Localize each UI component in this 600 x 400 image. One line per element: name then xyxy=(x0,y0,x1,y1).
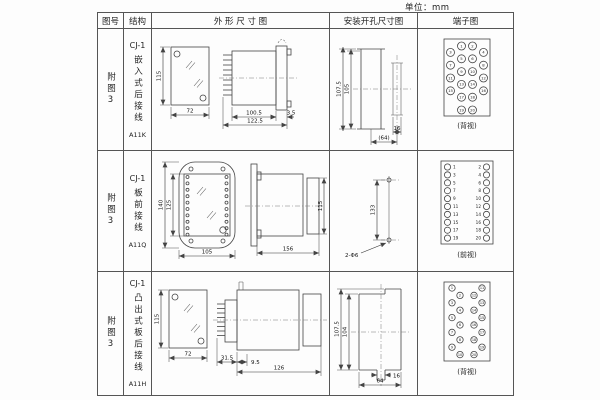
dim-depth-row2: 156 xyxy=(282,247,293,253)
cell-row3-fig: 附图3 xyxy=(98,272,124,396)
svg-text:6: 6 xyxy=(458,323,460,327)
svg-text:5: 5 xyxy=(450,315,452,319)
fig-no-row3: 附图3 xyxy=(105,316,117,352)
outline-drawing-row1: 115 72 100.5 3.5 xyxy=(153,31,329,149)
svg-text:18: 18 xyxy=(475,228,481,233)
dim-v-row2: 133 xyxy=(370,204,376,215)
svg-text:8: 8 xyxy=(458,337,460,341)
structure-desc-row1: 嵌入式后接线 xyxy=(132,55,144,124)
svg-text:7: 7 xyxy=(449,62,452,67)
dim-w-overall-row1: (64) xyxy=(378,135,389,141)
dim-v-outer-row3: 107.5 xyxy=(334,320,340,336)
model-row1: CJ-1 xyxy=(130,41,146,50)
svg-text:12: 12 xyxy=(475,204,481,209)
cell-row2-structure: CJ-1 板前接线 A11Q xyxy=(124,151,152,272)
hatch-mark xyxy=(186,61,203,88)
mounting-drawing-row1: 107.5 105 16 (64) xyxy=(331,31,417,149)
cell-row1-mounting: 107.5 105 16 (64) xyxy=(330,29,418,151)
svg-text:2: 2 xyxy=(471,43,474,48)
header-outline: 外 形 尺 寸 图 xyxy=(152,13,330,29)
code-row3: A11H xyxy=(129,380,147,388)
dim-w-slot-row3: 16 xyxy=(393,373,400,379)
cell-row1-outline: 115 72 100.5 3.5 xyxy=(152,29,330,151)
svg-text:18: 18 xyxy=(471,337,475,341)
svg-text:16: 16 xyxy=(471,323,475,327)
svg-text:14: 14 xyxy=(475,212,481,217)
svg-text:20: 20 xyxy=(475,236,481,241)
header-mounting: 安装开孔尺寸图 xyxy=(330,13,418,29)
svg-text:3: 3 xyxy=(450,300,452,304)
terminal-pins xyxy=(223,55,232,95)
cell-row2-terminal: 1234567891011121314151617181920 (前视) xyxy=(418,151,514,272)
svg-text:1: 1 xyxy=(460,43,463,48)
svg-text:15: 15 xyxy=(448,88,453,93)
fig-no-row2: 附图3 xyxy=(105,193,117,229)
datasheet-page: 单位：mm 图号 结构 外 形 尺 寸 图 安装开孔尺寸图 端子图 附图3 CJ… xyxy=(0,0,600,400)
svg-text:1: 1 xyxy=(453,164,456,169)
svg-text:3: 3 xyxy=(449,49,452,54)
svg-text:3: 3 xyxy=(453,172,456,177)
header-structure: 结构 xyxy=(124,13,152,29)
cell-row3-structure: CJ-1 凸出式板后接线 A11H xyxy=(124,272,152,396)
svg-text:16: 16 xyxy=(481,88,486,93)
svg-text:9: 9 xyxy=(450,345,452,349)
terminal-circles-front: 1234567891011121314151617181920 xyxy=(444,164,489,241)
svg-text:15: 15 xyxy=(453,220,459,225)
outline-drawing-row2: 140 125 105 156 115 xyxy=(153,152,329,270)
cell-row2-outline: 140 125 105 156 115 xyxy=(152,151,330,272)
structure-desc-row2: 板前接线 xyxy=(132,188,144,234)
drawing-table: 图号 结构 外 形 尺 寸 图 安装开孔尺寸图 端子图 附图3 CJ-1 嵌入式… xyxy=(97,12,514,396)
terminal-circles-rear: 1234567891011121314151617181920 xyxy=(446,42,487,114)
svg-text:19: 19 xyxy=(459,107,464,112)
svg-text:13: 13 xyxy=(453,212,459,217)
dim-front-width-row1: 72 xyxy=(186,108,193,114)
svg-text:7: 7 xyxy=(453,188,456,193)
code-row1: A11K xyxy=(129,131,146,139)
cell-row2-fig: 附图3 xyxy=(98,151,124,272)
model-row2: CJ-1 xyxy=(130,174,146,183)
svg-text:17: 17 xyxy=(479,330,483,334)
svg-text:16: 16 xyxy=(475,220,481,225)
svg-text:19: 19 xyxy=(479,345,483,349)
svg-text:8: 8 xyxy=(478,188,481,193)
cell-row3-terminal: 1234567891011121314151617181920 (背视) xyxy=(418,272,514,396)
dim-gap-row3: 9.5 xyxy=(251,360,260,366)
mounting-clip xyxy=(278,39,286,43)
svg-text:4: 4 xyxy=(478,172,481,177)
hatch-mark xyxy=(184,304,200,333)
terminal-circles-rear: 1234567891011121314151617181920 xyxy=(448,284,484,357)
dim-v-outer-row1: 107.5 xyxy=(336,80,342,96)
dim-base-row3: 31.5 xyxy=(220,355,233,361)
table-row: 附图3 CJ-1 嵌入式后接线 A11K 115 xyxy=(98,29,514,151)
svg-text:18: 18 xyxy=(470,94,475,99)
svg-text:14: 14 xyxy=(470,81,475,86)
svg-text:6: 6 xyxy=(471,56,474,61)
header-row: 图号 结构 外 形 尺 寸 图 安装开孔尺寸图 端子图 xyxy=(98,13,514,29)
svg-text:19: 19 xyxy=(453,236,459,241)
dim-front-h-outer-row2: 140 xyxy=(158,199,164,210)
dim-flange-row1: 3.5 xyxy=(286,110,295,116)
svg-text:12: 12 xyxy=(471,293,475,297)
cell-row1-structure: CJ-1 嵌入式后接线 A11K xyxy=(124,29,152,151)
svg-text:20: 20 xyxy=(470,107,475,112)
cell-row1-terminal: 1234567891011121314151617181920 (背视) xyxy=(418,29,514,151)
terminal-view-label-row3: (背视) xyxy=(457,367,477,376)
header-fig-no: 图号 xyxy=(98,13,124,29)
dim-w-overall-row3: 64 xyxy=(376,378,383,384)
svg-text:4: 4 xyxy=(458,308,460,312)
cell-row2-mounting: 133 2-Φ6 xyxy=(330,151,418,272)
svg-text:10: 10 xyxy=(475,196,481,201)
dim-side-h-row2: 115 xyxy=(317,200,323,211)
terminal-view-label-row2: (前视) xyxy=(457,250,477,259)
svg-text:6: 6 xyxy=(478,180,481,185)
dim-depth-total-row1: 122.5 xyxy=(247,118,263,124)
svg-text:2: 2 xyxy=(478,164,481,169)
cell-row3-mounting: 107.5 104 16 64 xyxy=(330,272,418,396)
svg-text:17: 17 xyxy=(453,228,459,233)
svg-text:15: 15 xyxy=(479,315,483,319)
svg-text:11: 11 xyxy=(448,75,453,80)
mounting-drawing-row2: 133 2-Φ6 xyxy=(331,152,417,270)
svg-text:10: 10 xyxy=(470,68,475,73)
model-row3: CJ-1 xyxy=(130,279,146,288)
svg-text:5: 5 xyxy=(460,56,463,61)
dim-depth-total-row3: 126 xyxy=(273,365,284,371)
terminal-diagram-row1: 1234567891011121314151617181920 (背视) xyxy=(419,30,513,150)
svg-text:10: 10 xyxy=(457,352,461,356)
dim-w-slot-row1: 16 xyxy=(393,126,400,132)
svg-text:5: 5 xyxy=(453,180,456,185)
mounting-drawing-row3: 107.5 104 16 64 xyxy=(331,274,417,394)
svg-text:17: 17 xyxy=(459,94,464,99)
svg-text:13: 13 xyxy=(459,81,464,86)
fig-no-row1: 附图3 xyxy=(105,72,117,108)
dim-front-h-inner-row2: 125 xyxy=(166,199,172,210)
code-row2: A11Q xyxy=(129,241,147,249)
header-terminal: 端子图 xyxy=(418,13,514,29)
hole-label-row2: 2-Φ6 xyxy=(345,253,359,259)
svg-text:11: 11 xyxy=(479,286,483,290)
outline-drawing-row3: 115 72 31.5 9.5 126 xyxy=(153,274,329,394)
svg-text:8: 8 xyxy=(482,62,485,67)
dim-front-h-row3: 115 xyxy=(154,313,160,324)
svg-text:14: 14 xyxy=(471,308,475,312)
structure-desc-row3: 凸出式板后接线 xyxy=(132,293,144,374)
dim-front-height-row1: 115 xyxy=(156,70,162,81)
table-row: 附图3 CJ-1 凸出式板后接线 A11H 115 xyxy=(98,272,514,396)
dim-front-w-row3: 72 xyxy=(184,351,191,357)
svg-text:2: 2 xyxy=(458,293,460,297)
svg-text:20: 20 xyxy=(471,352,475,356)
svg-text:4: 4 xyxy=(482,49,485,54)
svg-text:11: 11 xyxy=(453,204,459,209)
table-row: 附图3 CJ-1 板前接线 A11Q xyxy=(98,151,514,272)
terminal-view-label-row1: (背视) xyxy=(457,121,477,130)
dim-front-w-row2: 105 xyxy=(201,250,212,256)
cell-row3-outline: 115 72 31.5 9.5 126 xyxy=(152,272,330,396)
terminal-diagram-row2: 1234567891011121314151617181920 (前视) xyxy=(419,151,513,271)
svg-text:9: 9 xyxy=(460,68,463,73)
cell-row1-fig: 附图3 xyxy=(98,29,124,151)
dim-v-inner-row3: 104 xyxy=(342,326,348,337)
dim-depth-case-row1: 100.5 xyxy=(246,110,262,116)
terminal-diagram-row3: 1234567891011121314151617181920 (背视) xyxy=(419,274,513,394)
svg-text:12: 12 xyxy=(481,75,486,80)
svg-text:13: 13 xyxy=(479,300,483,304)
hatch-mark xyxy=(197,187,216,220)
svg-text:1: 1 xyxy=(450,286,452,290)
svg-text:7: 7 xyxy=(450,330,452,334)
dim-v-inner-row1: 105 xyxy=(344,83,350,94)
svg-text:9: 9 xyxy=(453,196,456,201)
